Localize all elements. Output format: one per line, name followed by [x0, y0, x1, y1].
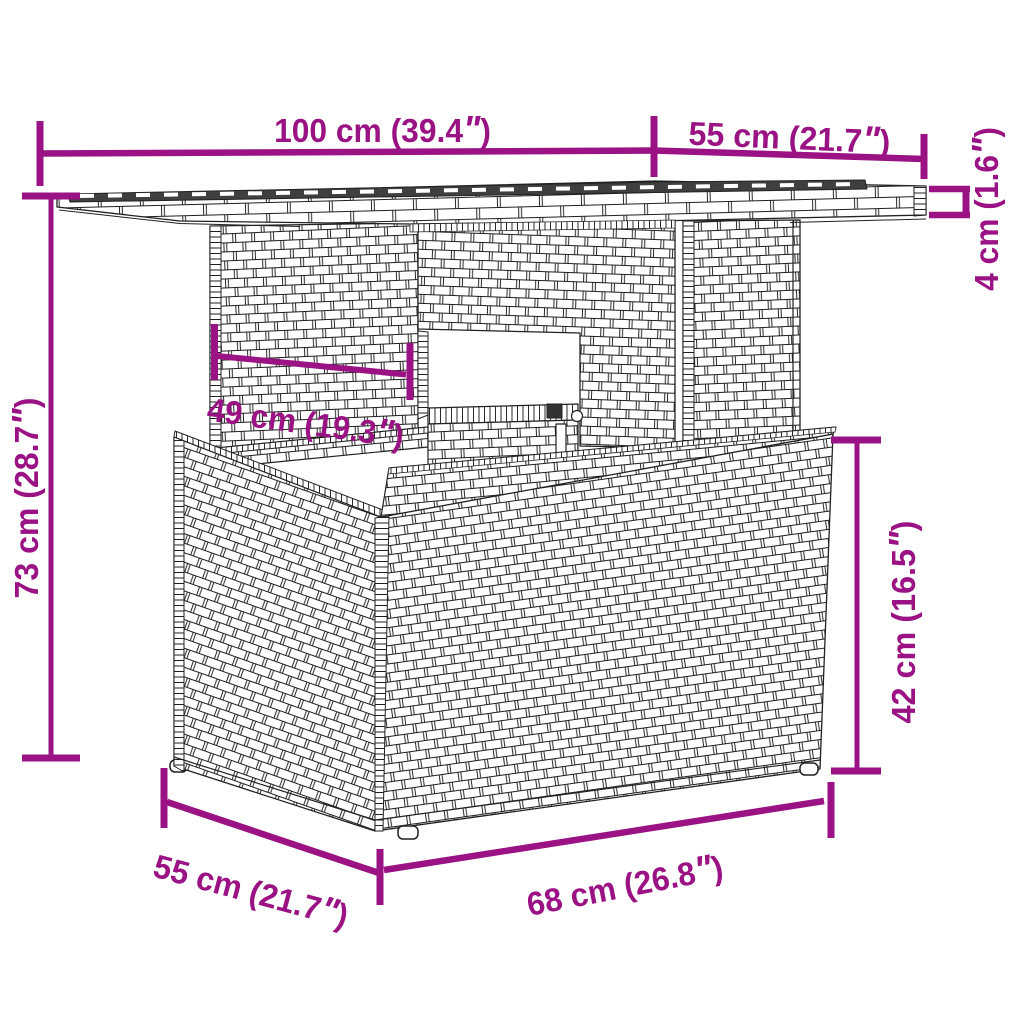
- svg-text:42 cm (16.5"): 42 cm (16.5"): [881, 521, 923, 724]
- svg-text:4 cm (1.6"): 4 cm (1.6"): [963, 127, 1006, 291]
- svg-text:100 cm (39.4"): 100 cm (39.4"): [274, 107, 491, 150]
- svg-text:73 cm (28.7"): 73 cm (28.7"): [4, 398, 47, 599]
